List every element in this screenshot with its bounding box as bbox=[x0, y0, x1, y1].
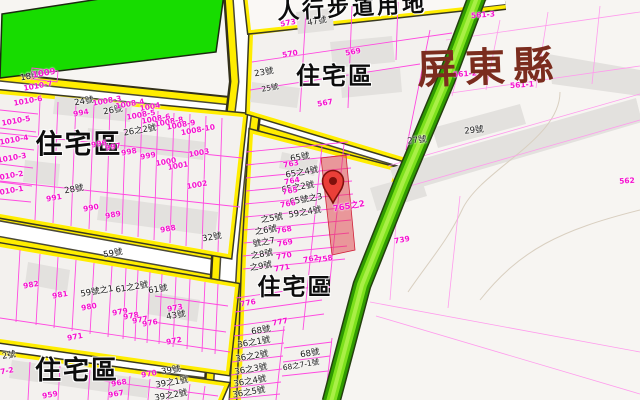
red-map-pin-marker[interactable] bbox=[315, 162, 351, 208]
pin-hole bbox=[329, 177, 337, 185]
map-canvas[interactable]: 住宅區住宅區住宅區住宅區18號24號26號26之2號28號32號23號47號25… bbox=[0, 0, 640, 400]
pin-body bbox=[323, 171, 344, 204]
county-label: 屏東縣 bbox=[416, 33, 562, 96]
